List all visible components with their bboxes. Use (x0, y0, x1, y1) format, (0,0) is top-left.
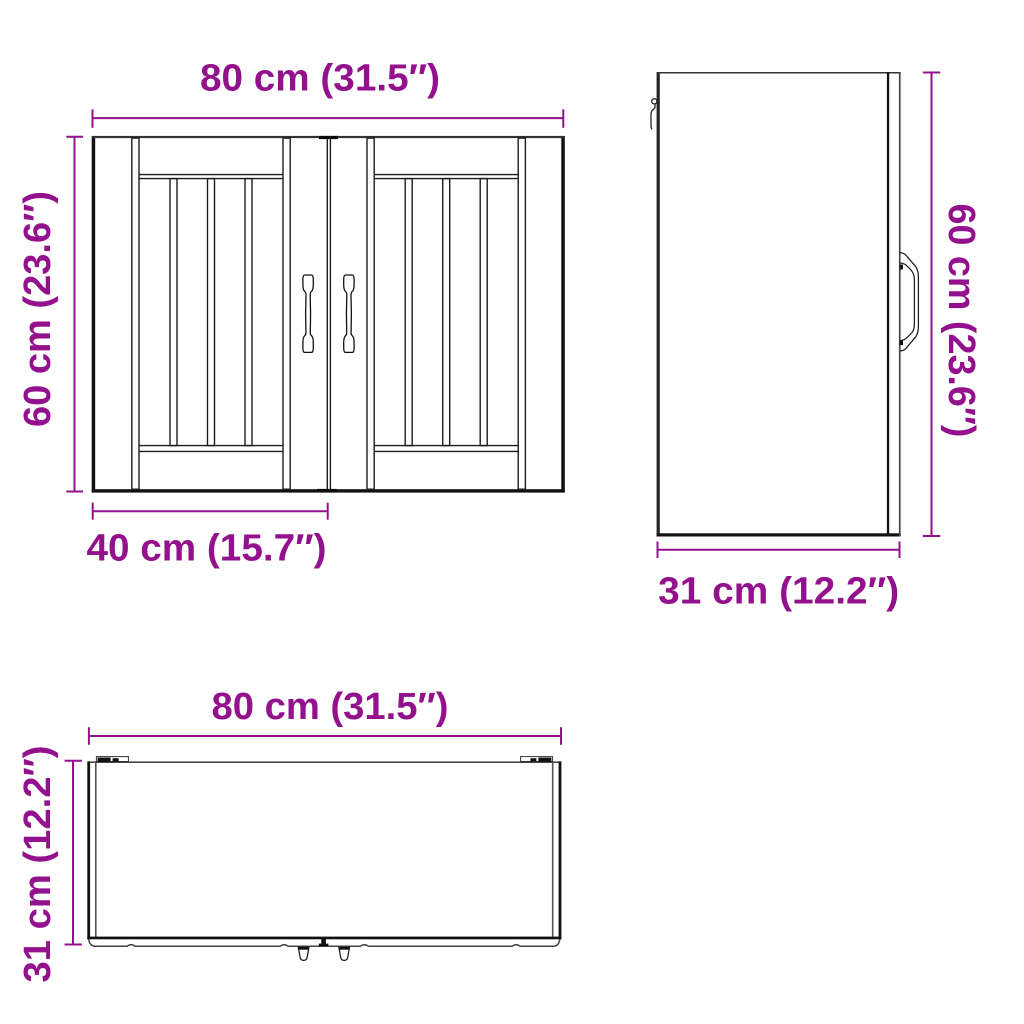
svg-text:80 cm (31.5″): 80 cm (31.5″) (212, 686, 449, 728)
svg-text:60 cm (23.6″): 60 cm (23.6″) (940, 203, 982, 437)
svg-text:31 cm (12.2″): 31 cm (12.2″) (658, 571, 899, 613)
svg-text:40 cm (15.7″): 40 cm (15.7″) (87, 528, 327, 570)
svg-text:60 cm (23.6″): 60 cm (23.6″) (17, 191, 59, 427)
svg-text:80 cm (31.5″): 80 cm (31.5″) (200, 58, 440, 100)
svg-text:31 cm (12.2″): 31 cm (12.2″) (17, 746, 59, 983)
